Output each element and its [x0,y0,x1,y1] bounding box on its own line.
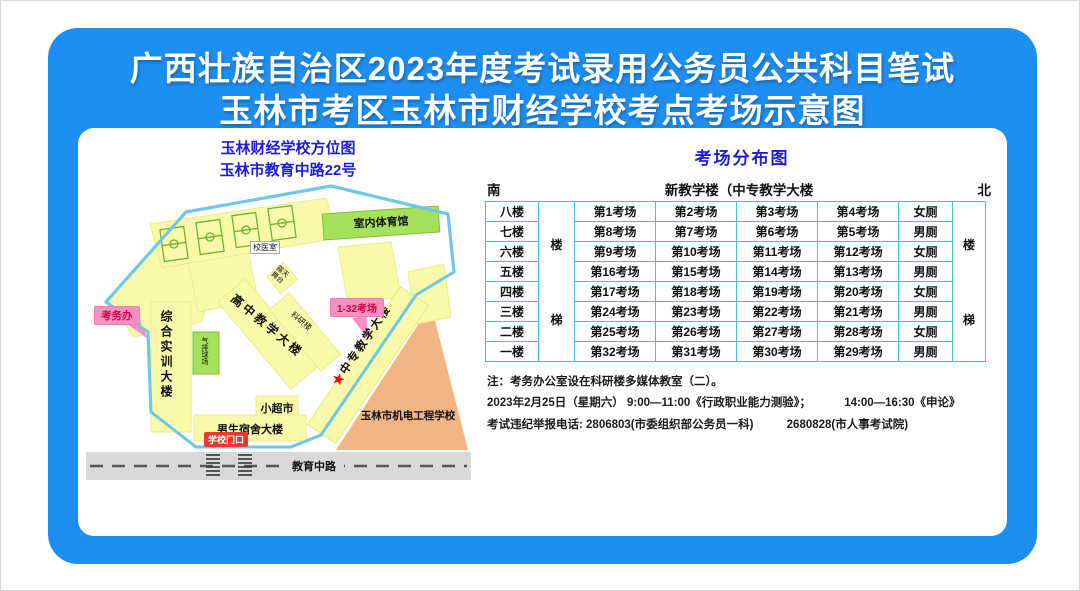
page-title-line1: 广西壮族自治区2023年度考试录用公务员公共科目笔试 [48,48,1037,90]
direction-south: 南 [487,179,501,199]
exam-room-cell: 第25考场 [575,322,656,342]
toilet-cell: 男厕 [899,342,953,362]
stair-label: 梯 [963,311,975,328]
map-header-line1: 玉林财经学校方位图 [138,138,438,160]
campus-map: 室内体育馆 校医室 露天舞台 科研楼 高中教学大楼 ★中专教学大楼 综合实训大楼… [86,172,471,532]
exam-room-cell: 第10考场 [656,242,737,262]
note-line3: 考试违纪举报电话: 2806803(市委组织部公务员一科) 2680828(市人… [487,415,1001,436]
page-title: 广西壮族自治区2023年度考试录用公务员公共科目笔试 玉林市考区玉林市财经学校考… [48,48,1037,132]
note-hotline-2: 2680828(市人事考试院) [787,419,908,431]
exam-room-cell: 第22考场 [737,302,818,322]
content-panel: 玉林财经学校方位图 玉林市教育中路22号 [78,128,1007,536]
neighbor-school-label: 玉林市机电工程学校 [348,408,468,423]
exam-room-cell: 第8考场 [575,222,656,242]
exam-office-callout: 考务办 [94,306,140,325]
floor-cell: 二楼 [486,322,539,342]
road-label: 教育中路 [284,458,344,474]
training-building-label: 综合实训大楼 [158,310,175,430]
exam-room-cell: 第13考场 [818,262,899,282]
toilet-cell: 男厕 [899,302,953,322]
floor-cell: 一楼 [486,342,539,362]
floor-cell: 三楼 [486,302,539,322]
exam-room-cell: 第14考场 [737,262,818,282]
exam-room-cell: 第4考场 [818,202,899,222]
note-line2: 2023年2月25日（星期六） 9:00—11:00《行政职业能力测验》； 14… [487,393,1001,414]
floor-cell: 八楼 [486,202,539,222]
exam-room-cell: 第16考场 [575,262,656,282]
stair-label: 楼 [550,236,562,253]
gate-label: 学校门口 [204,432,248,447]
direction-header: 南 新教学楼（中专教学大楼 北 [483,179,1001,201]
notes: 注：考务办公室设在科研楼多媒体教室（二）。 2023年2月25日（星期六） 9:… [487,372,1001,436]
note-session-am: 2023年2月25日（星期六） 9:00—11:00《行政职业能力测验》； [487,397,811,409]
exam-room-cell: 第28考场 [818,322,899,342]
exam-room-cell: 第31考场 [656,342,737,362]
exam-room-cell: 第15考场 [656,262,737,282]
floor-cell: 四楼 [486,282,539,302]
exam-room-cell: 第30考场 [737,342,818,362]
stair-label: 梯 [550,311,562,328]
note-hotline-1: 考试违纪举报电话: 2806803(市委组织部公务员一科) [487,419,753,431]
exam-room-cell: 第12考场 [818,242,899,262]
floor-cell: 六楼 [486,242,539,262]
exam-room-cell: 第23考场 [656,302,737,322]
page-title-line2: 玉林市考区玉林市财经学校考点考场示意图 [48,90,1037,132]
direction-north: 北 [978,179,992,199]
exam-room-cell: 第9考场 [575,242,656,262]
toilet-cell: 女厕 [899,202,953,222]
supermarket-label: 小超市 [256,400,298,416]
exam-room-cell: 第26考场 [656,322,737,342]
exam-room-cell: 第3考场 [737,202,818,222]
exam-room-cell: 第19考场 [737,282,818,302]
poster-card: 广西壮族自治区2023年度考试录用公务员公共科目笔试 玉林市考区玉林市财经学校考… [48,28,1037,564]
exam-room-cell: 第17考场 [575,282,656,302]
volleyball-court-label: 气排球场 [199,337,209,373]
exam-room-cell: 第11考场 [737,242,818,262]
toilet-cell: 男厕 [899,222,953,242]
exam-room-cell: 第5考场 [818,222,899,242]
toilet-cell: 男厕 [899,262,953,282]
exam-rooms-callout: 1-32考场 [330,298,384,317]
note-session-pm: 14:00—16:30《申论》 [844,397,960,409]
exam-room-cell: 第18考场 [656,282,737,302]
exam-room-cell: 第29考场 [818,342,899,362]
toilet-cell: 女厕 [899,282,953,302]
exam-room-cell: 第7考场 [656,222,737,242]
floor-cell: 七楼 [486,222,539,242]
exam-room-cell: 第1考场 [575,202,656,222]
exam-room-cell: 第20考场 [818,282,899,302]
exam-room-cell: 第32考场 [575,342,656,362]
room-table: 八楼 楼 梯 第1考场 第2考场 第3考场 第4考场 女厕 楼 [485,201,986,362]
exam-room-cell: 第27考场 [737,322,818,342]
table-row: 八楼 楼 梯 第1考场 第2考场 第3考场 第4考场 女厕 楼 [486,202,986,222]
exam-room-cell: 第21考场 [818,302,899,322]
exam-room-cell: 第6考场 [737,222,818,242]
stair-cell-left: 楼 梯 [539,202,575,362]
room-table-section: 考场分布图 南 新教学楼（中专教学大楼 北 八楼 楼 梯 [483,136,1001,528]
floor-cell: 五楼 [486,262,539,282]
table-title: 考场分布图 [483,144,1001,169]
exam-room-cell: 第2考场 [656,202,737,222]
yard-block [338,242,401,304]
toilet-cell: 女厕 [899,322,953,342]
building-header: 新教学楼（中专教学大楼 [665,179,814,199]
note-line1: 注：考务办公室设在科研楼多媒体教室（二）。 [487,372,1001,393]
stair-cell-right: 楼 梯 [953,202,986,362]
clinic-label: 校医室 [250,241,280,254]
stair-label: 楼 [963,236,975,253]
exam-room-cell: 第24考场 [575,302,656,322]
toilet-cell: 女厕 [899,242,953,262]
